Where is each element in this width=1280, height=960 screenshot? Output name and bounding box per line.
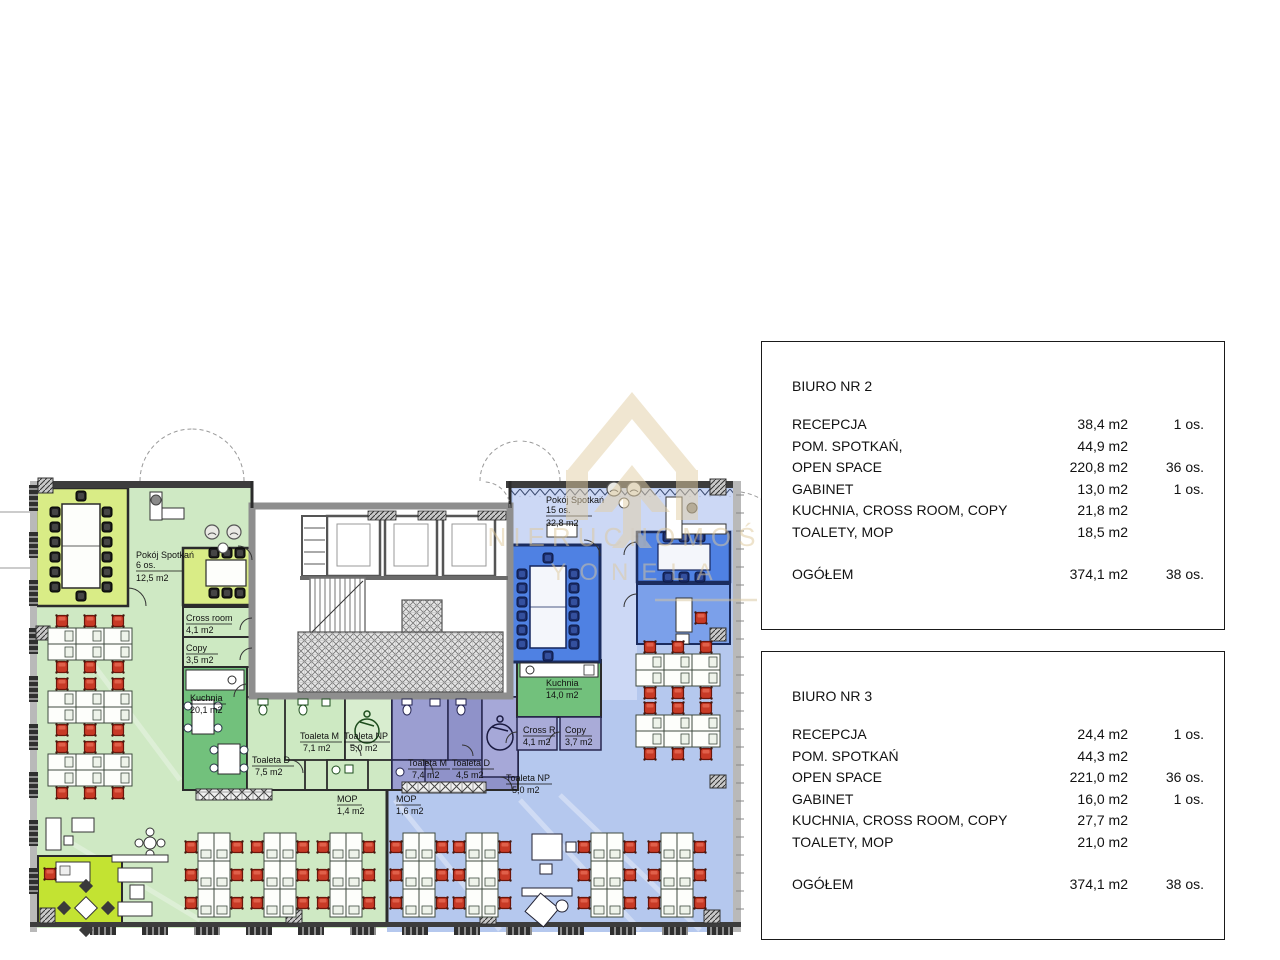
summary-row: GABINET 13,0 m2 1 os. (792, 479, 1224, 501)
row-area: 21,8 m2 (1044, 500, 1128, 522)
summary-rows: RECEPCJA 38,4 m2 1 os. POM. SPOTKAŃ, 44,… (792, 414, 1224, 586)
label-text: Cross R. (523, 725, 558, 735)
row-persons (1128, 500, 1204, 522)
building-core (252, 506, 510, 696)
label-text: MOP (337, 794, 358, 804)
row-area: 27,7 m2 (1044, 810, 1128, 832)
summary-total-row: OGÓŁEM 374,1 m2 38 os. (792, 564, 1224, 586)
label-text: 7,5 m2 (255, 767, 283, 777)
total-label: OGÓŁEM (792, 564, 1044, 586)
label-text: Copy (565, 725, 587, 735)
label-text: Toaleta D (452, 758, 491, 768)
row-area: 13,0 m2 (1044, 479, 1128, 501)
row-label: TOALETY, MOP (792, 832, 1044, 854)
elevator-1 (327, 516, 380, 576)
row-label: RECEPCJA (792, 414, 1044, 436)
row-label: POM. SPOTKAŃ (792, 746, 1044, 768)
row-area: 220,8 m2 (1044, 457, 1128, 479)
label-text: Toaleta M (300, 731, 339, 741)
row-label: GABINET (792, 789, 1044, 811)
label-text: Toaleta NP (506, 773, 550, 783)
label-kitchen-left: Kuchnia 20,1 m2 (190, 693, 226, 715)
summary-title: BIURO NR 3 (792, 688, 1224, 704)
label-text: Toaleta D (252, 755, 291, 765)
shaft-room (302, 516, 327, 576)
label-text: 4,1 m2 (186, 625, 214, 635)
summary-row: RECEPCJA 24,4 m2 1 os. (792, 724, 1224, 746)
summary-row: POM. SPOTKAŃ 44,3 m2 (792, 746, 1224, 768)
row-persons (1128, 436, 1204, 458)
label-text: 14,0 m2 (546, 690, 579, 700)
meeting-table-small-left (206, 548, 246, 598)
label-text: Kuchnia (190, 693, 223, 703)
label-text: 5,0 m2 (350, 743, 378, 753)
summary-title: BIURO NR 2 (792, 378, 1224, 394)
row-area: 44,3 m2 (1044, 746, 1128, 768)
row-persons: 1 os. (1128, 479, 1204, 501)
row-label: RECEPCJA (792, 724, 1044, 746)
row-area: 16,0 m2 (1044, 789, 1128, 811)
summary-row: TOALETY, MOP 21,0 m2 (792, 832, 1224, 854)
label-text: 12,5 m2 (136, 573, 169, 583)
elevator-2 (385, 516, 437, 576)
summary-row: OPEN SPACE 221,0 m2 36 os. (792, 767, 1224, 789)
label-text: Toaleta M (408, 758, 447, 768)
row-label: OPEN SPACE (792, 767, 1044, 789)
watermark-line1: NIERUCHOMOŚCI (488, 522, 803, 552)
label-text: Cross room (186, 613, 233, 623)
summary-box-biuro-2: BIURO NR 2 RECEPCJA 38,4 m2 1 os. POM. S… (761, 341, 1225, 630)
row-area: 21,0 m2 (1044, 832, 1128, 854)
summary-row: KUCHNIA, CROSS ROOM, COPY 27,7 m2 (792, 810, 1224, 832)
label-text: Pokój Spotkań (136, 550, 194, 560)
total-label: OGÓŁEM (792, 874, 1044, 896)
row-persons (1128, 810, 1204, 832)
label-text: 1,6 m2 (396, 806, 424, 816)
row-persons: 1 os. (1128, 724, 1204, 746)
row-area: 38,4 m2 (1044, 414, 1128, 436)
label-text: 6 os. (136, 560, 156, 570)
total-persons: 38 os. (1128, 874, 1204, 896)
summary-row: KUCHNIA, CROSS ROOM, COPY 21,8 m2 (792, 500, 1224, 522)
label-text: MOP (396, 794, 417, 804)
label-text: Toaleta NP (344, 731, 388, 741)
row-persons (1128, 746, 1204, 768)
summary-row: TOALETY, MOP 18,5 m2 (792, 522, 1224, 544)
summary-total-row: OGÓŁEM 374,1 m2 38 os. (792, 874, 1224, 896)
conference-table-left (50, 491, 112, 601)
total-area: 374,1 m2 (1044, 874, 1128, 896)
label-text: Copy (186, 643, 208, 653)
row-persons: 36 os. (1128, 457, 1204, 479)
label-text: 20,1 m2 (190, 705, 223, 715)
row-area: 18,5 m2 (1044, 522, 1128, 544)
label-text: 1,4 m2 (337, 806, 365, 816)
summary-row: RECEPCJA 38,4 m2 1 os. (792, 414, 1224, 436)
row-persons: 1 os. (1128, 414, 1204, 436)
row-area: 221,0 m2 (1044, 767, 1128, 789)
label-text: 5,0 m2 (512, 785, 540, 795)
locker-strip-left (196, 789, 272, 800)
label-text: 7,1 m2 (303, 743, 331, 753)
row-persons: 36 os. (1128, 767, 1204, 789)
row-persons: 1 os. (1128, 789, 1204, 811)
label-text: 4,5 m2 (456, 770, 484, 780)
window-mullions-left (29, 485, 38, 894)
row-label: OPEN SPACE (792, 457, 1044, 479)
row-persons (1128, 522, 1204, 544)
row-area: 44,9 m2 (1044, 436, 1128, 458)
row-label: KUCHNIA, CROSS ROOM, COPY (792, 810, 1044, 832)
label-text: 4,1 m2 (523, 737, 551, 747)
kitchen-right-furniture (520, 663, 598, 677)
summary-row: POM. SPOTKAŃ, 44,9 m2 (792, 436, 1224, 458)
total-persons: 38 os. (1128, 564, 1204, 586)
row-label: GABINET (792, 479, 1044, 501)
summary-box-biuro-3: BIURO NR 3 RECEPCJA 24,4 m2 1 os. POM. S… (761, 651, 1225, 940)
label-text: 7,4 m2 (412, 770, 440, 780)
summary-row: GABINET 16,0 m2 1 os. (792, 789, 1224, 811)
row-label: POM. SPOTKAŃ, (792, 436, 1044, 458)
label-text: Kuchnia (546, 678, 579, 688)
summary-rows: RECEPCJA 24,4 m2 1 os. POM. SPOTKAŃ 44,3… (792, 724, 1224, 896)
row-area: 24,4 m2 (1044, 724, 1128, 746)
summary-row: OPEN SPACE 220,8 m2 36 os. (792, 457, 1224, 479)
watermark-line2: YONELA (550, 559, 725, 586)
row-persons (1128, 832, 1204, 854)
total-area: 374,1 m2 (1044, 564, 1128, 586)
locker-strip-right (402, 782, 486, 793)
label-kitchen-right: Kuchnia 14,0 m2 (546, 678, 582, 700)
row-label: KUCHNIA, CROSS ROOM, COPY (792, 500, 1044, 522)
row-label: TOALETY, MOP (792, 522, 1044, 544)
label-text: 3,5 m2 (186, 655, 214, 665)
label-text: 3,7 m2 (565, 737, 593, 747)
staircase (310, 578, 365, 635)
